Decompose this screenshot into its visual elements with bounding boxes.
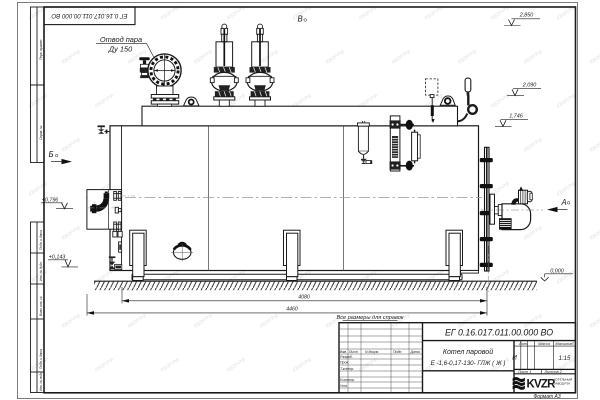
svg-text:А: А — [561, 198, 567, 207]
svg-text:Б: Б — [49, 150, 54, 159]
svg-text:Лист: Лист — [348, 350, 358, 354]
svg-text:4460: 4460 — [286, 307, 298, 313]
svg-text:Разраб.: Разраб. — [340, 355, 353, 359]
svg-text:Котел паровой: Котел паровой — [443, 348, 493, 356]
svg-text:KVZR: KVZR — [527, 379, 557, 391]
svg-text:Масштаб: Масштаб — [555, 341, 574, 346]
svg-text:ЗАВОД РЭУ: ЗАВОД РЭУ — [554, 382, 570, 386]
svg-text:Дата: Дата — [410, 350, 420, 354]
svg-text:2,090: 2,090 — [522, 82, 537, 88]
svg-text:Пров.: Пров. — [340, 361, 349, 365]
svg-text:ЕГ 0.16.017.011.00.000 ВО: ЕГ 0.16.017.011.00.000 ВО — [445, 327, 553, 337]
svg-text:Перв. примен.: Перв. примен. — [39, 39, 43, 60]
svg-text:Подп. и дата: Подп. и дата — [39, 349, 43, 369]
svg-text:Листов 2: Листов 2 — [544, 369, 563, 374]
svg-text:1:15: 1:15 — [559, 356, 571, 362]
svg-text:ЕГ 0.16.017.011.00.000 ВО: ЕГ 0.16.017.011.00.000 ВО — [51, 12, 127, 19]
svg-text:Е -1,6-0,17-130- ГЛЖ ( Ж ): Е -1,6-0,17-130- ГЛЖ ( Ж ) — [431, 360, 506, 367]
svg-text:2,850: 2,850 — [519, 13, 534, 19]
svg-text:Т.контр.: Т.контр. — [340, 367, 354, 371]
svg-text:Подп. и дата: Подп. и дата — [39, 230, 43, 250]
svg-text:1,746: 1,746 — [509, 113, 523, 119]
svg-text:Лит.: Лит. — [518, 341, 528, 346]
svg-text:Утв.: Утв. — [340, 384, 348, 388]
svg-text:Инв. № подл.: Инв. № подл. — [39, 371, 43, 391]
svg-text:Н.контр.: Н.контр. — [340, 378, 355, 382]
svg-text:Взам. инв. №: Взам. инв. № — [39, 296, 43, 316]
svg-text:Лист 1: Лист 1 — [517, 369, 531, 374]
svg-text:Формат А3: Формат А3 — [533, 394, 561, 400]
svg-text:В: В — [298, 14, 303, 23]
svg-text:Отвод пара: Отвод пара — [100, 35, 142, 44]
svg-text:N докум.: N докум. — [365, 350, 379, 354]
svg-text:Все размеры для справок: Все размеры для справок — [337, 315, 404, 321]
svg-text:Изм.: Изм. — [340, 350, 347, 354]
svg-text:И: И — [512, 355, 517, 362]
svg-text:4080: 4080 — [298, 295, 310, 301]
svg-text:Справ. №: Справ. № — [39, 125, 43, 140]
svg-text:Инв. № дубл.: Инв. № дубл. — [39, 261, 43, 281]
svg-text:Масса: Масса — [538, 341, 550, 346]
svg-text:Подп.: Подп. — [393, 350, 402, 354]
svg-text:Ду 150: Ду 150 — [108, 45, 133, 54]
